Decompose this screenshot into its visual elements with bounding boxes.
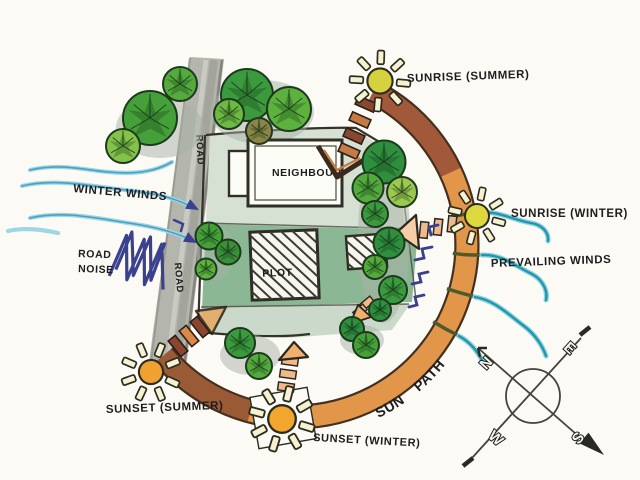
tree-icon	[106, 129, 140, 163]
tree-icon	[353, 173, 384, 204]
road-noise-label-line2: NOISE	[78, 263, 114, 276]
tree-icon	[369, 299, 391, 321]
tree-icon	[267, 87, 311, 131]
plot-building: PLOT	[250, 230, 319, 300]
tree-icon	[362, 201, 388, 227]
tree-icon	[374, 228, 405, 259]
sunrise-summer-sun-icon	[349, 50, 410, 111]
tree-icon	[214, 99, 244, 129]
tree-icon	[225, 328, 255, 358]
tree-icon	[363, 255, 387, 279]
sketch-drawing: ROAD ROAD NEIGHBOUR PLOT	[0, 0, 640, 480]
sunrise-winter-label: SUNRISE (WINTER)	[511, 208, 628, 220]
tree-icon	[246, 353, 272, 379]
road-noise-label-line1: ROAD	[78, 248, 112, 261]
tree-icon	[246, 118, 272, 144]
tree-icon	[353, 332, 379, 358]
plot-label: PLOT	[262, 267, 293, 280]
tree-icon	[163, 67, 197, 101]
tree-icon	[216, 240, 241, 265]
tree-icon	[387, 177, 417, 207]
site-analysis-sketch: ROAD ROAD NEIGHBOUR PLOT	[0, 0, 640, 480]
tree-icon	[196, 259, 217, 280]
